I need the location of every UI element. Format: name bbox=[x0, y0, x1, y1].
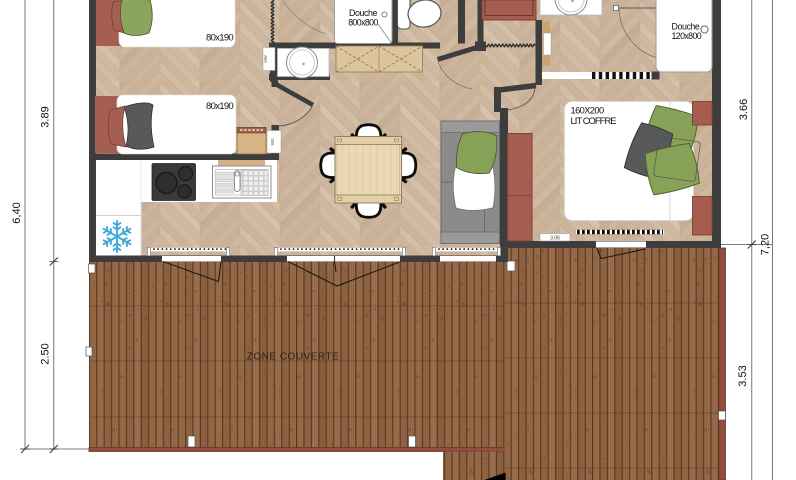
svg-text:2.50: 2.50 bbox=[40, 343, 52, 364]
svg-text:80x190: 80x190 bbox=[206, 101, 233, 112]
svg-text:Douche: Douche bbox=[672, 22, 700, 32]
svg-text:7,20: 7,20 bbox=[760, 234, 772, 255]
svg-text:3.66: 3.66 bbox=[738, 99, 750, 120]
svg-text:3.06: 3.06 bbox=[550, 236, 560, 242]
svg-text:800x800: 800x800 bbox=[348, 18, 378, 28]
svg-text:LIT COFFRE: LIT COFFRE bbox=[571, 116, 617, 126]
svg-text:160X200: 160X200 bbox=[571, 106, 604, 116]
svg-text:3.89: 3.89 bbox=[40, 106, 52, 127]
svg-text:120x800: 120x800 bbox=[672, 31, 702, 41]
svg-text:MW: MW bbox=[263, 55, 268, 62]
svg-text:ZONE COUVERTE: ZONE COUVERTE bbox=[247, 352, 339, 363]
svg-text:80x190: 80x190 bbox=[206, 33, 233, 44]
svg-text:Douche: Douche bbox=[349, 8, 377, 18]
svg-text:900: 900 bbox=[270, 138, 275, 146]
svg-text:3.53: 3.53 bbox=[737, 365, 749, 386]
svg-text:6,40: 6,40 bbox=[11, 202, 23, 223]
